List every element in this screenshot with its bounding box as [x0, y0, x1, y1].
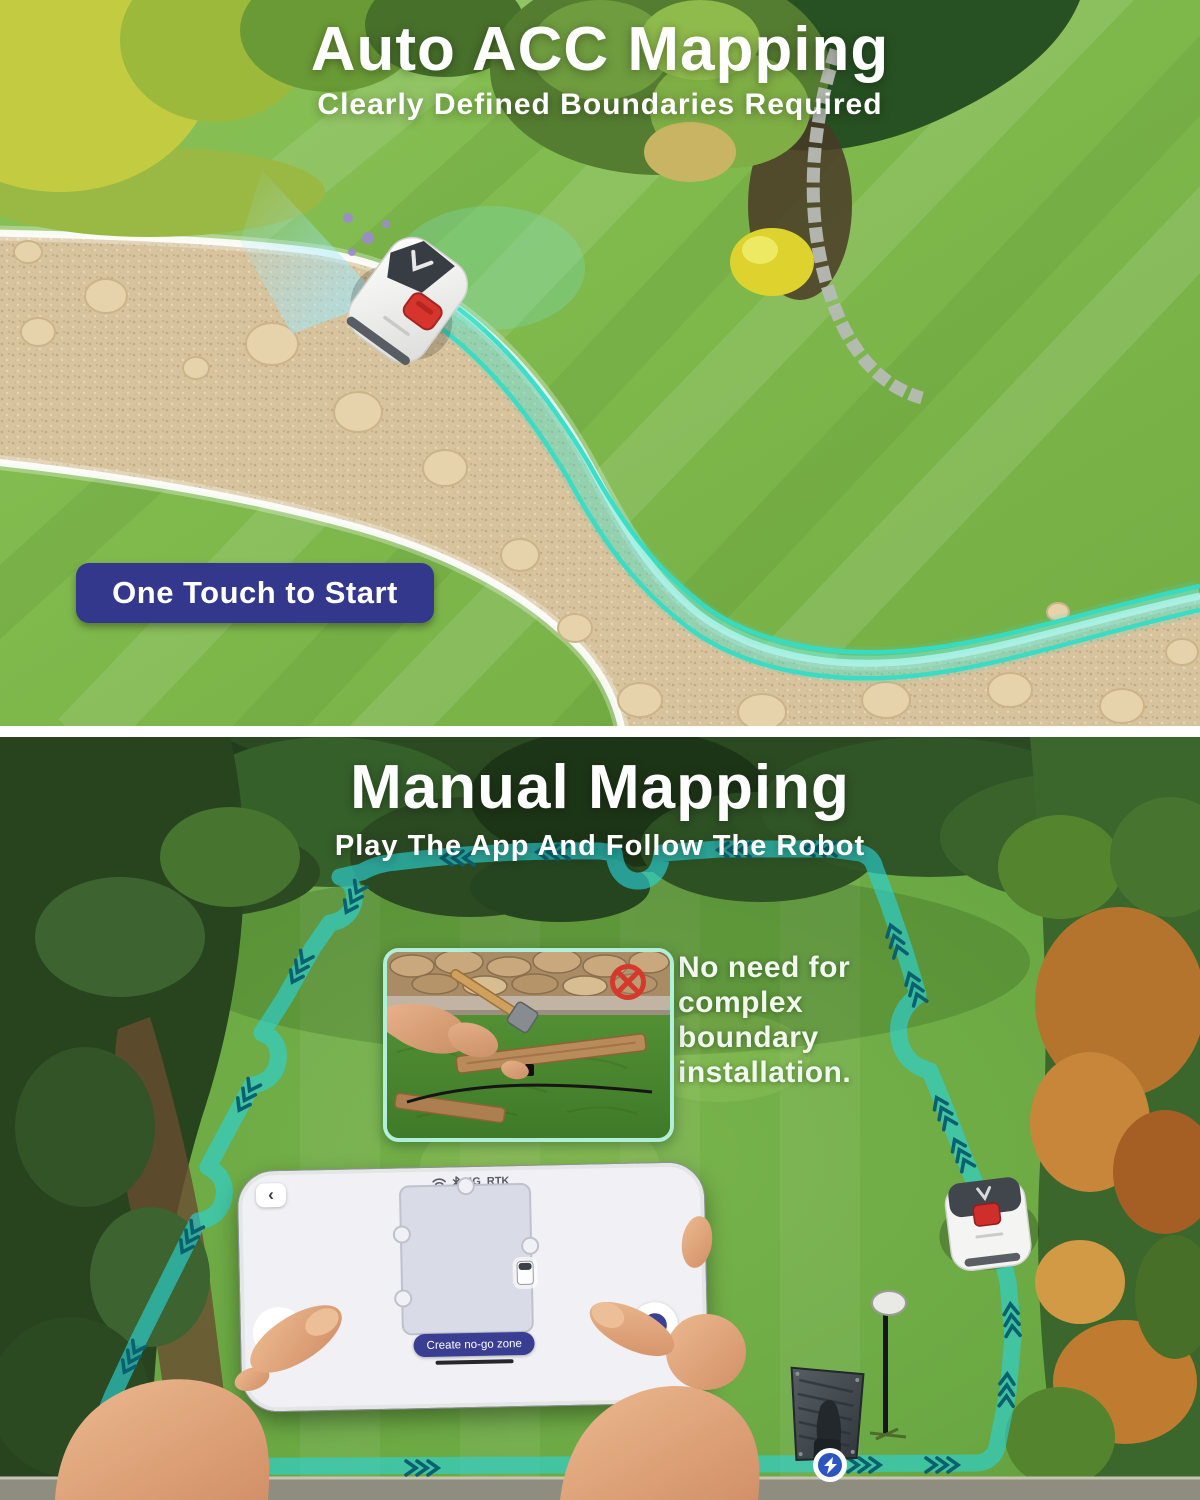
callout-line: boundary: [678, 1020, 851, 1055]
map-notch: [521, 1237, 539, 1255]
section1-subtitle: Clearly Defined Boundaries Required: [0, 88, 1200, 122]
robot-mower-following: [933, 1174, 1043, 1276]
back-button[interactable]: ‹: [256, 1183, 286, 1208]
callout-line: No need for: [678, 950, 851, 985]
stop-button: [973, 1203, 1001, 1227]
map-notch: [457, 1177, 475, 1195]
more-icon: ⋯: [681, 1313, 695, 1330]
map-notch: [393, 1225, 411, 1243]
section2-subtitle: Play The App And Follow The Robot: [0, 830, 1200, 863]
section1-title: Auto ACC Mapping: [0, 14, 1200, 85]
no-boundary-wire-icon: [608, 962, 648, 1002]
home-indicator: [436, 1359, 514, 1365]
marketing-page: Auto ACC Mapping Clearly Defined Boundar…: [0, 0, 1200, 1500]
callout-line: complex: [678, 985, 851, 1020]
map-robot-marker: [516, 1261, 533, 1285]
map-notch: [394, 1289, 412, 1307]
boundary-wire-inset-photo: [383, 948, 674, 1142]
create-no-go-zone-button[interactable]: Create no-go zone: [413, 1332, 535, 1358]
back-icon: ‹: [268, 1185, 274, 1205]
left-joystick[interactable]: [252, 1307, 305, 1360]
lightning-icon: [813, 1448, 847, 1482]
phone: ‹ 4G RTK Create no-go zone ⋯: [238, 1162, 709, 1412]
map-canvas[interactable]: [399, 1183, 534, 1336]
callout-line: installation.: [678, 1055, 851, 1090]
one-touch-badge: One Touch to Start: [76, 563, 434, 623]
section2-title: Manual Mapping: [0, 752, 1200, 823]
rtk-antenna: [870, 1291, 906, 1439]
no-wire-callout: No need for complex boundary installatio…: [678, 950, 851, 1090]
